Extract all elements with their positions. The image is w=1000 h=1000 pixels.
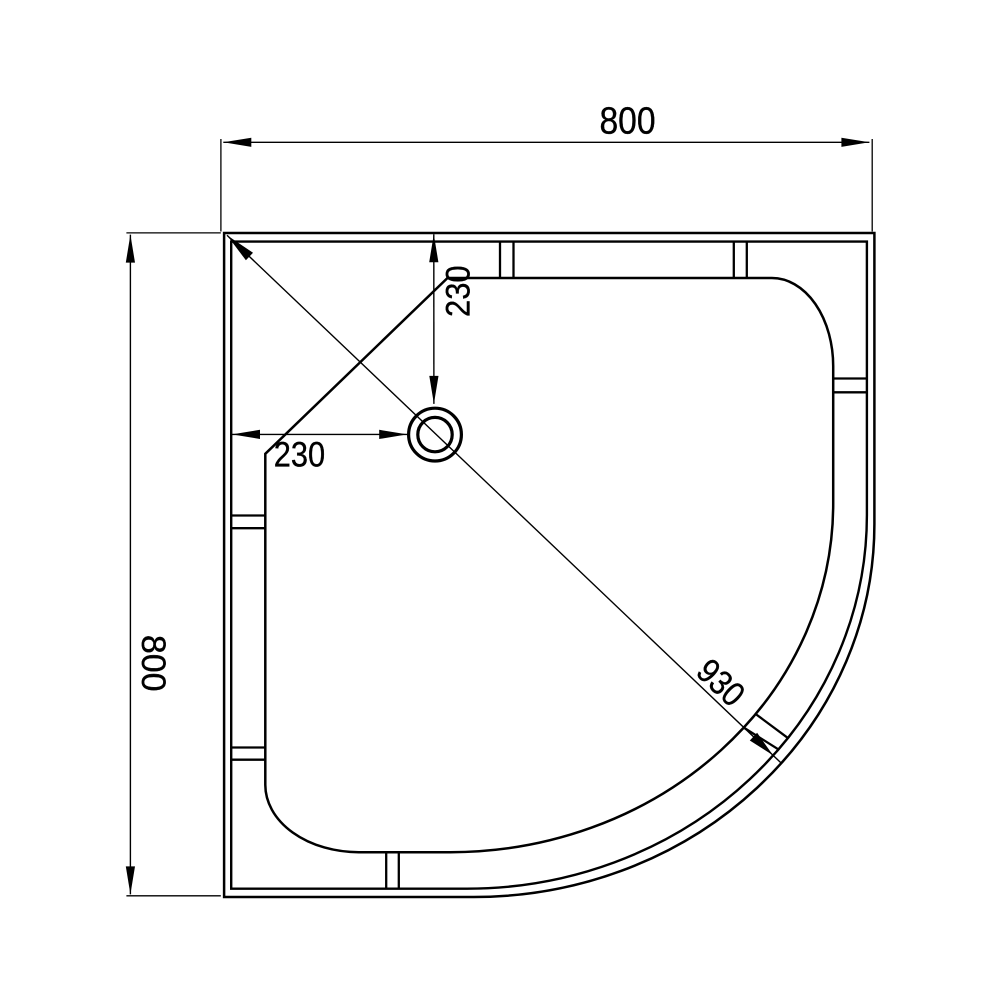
svg-text:800: 800 — [599, 100, 655, 142]
svg-text:230: 230 — [274, 434, 325, 473]
svg-text:800: 800 — [134, 635, 172, 692]
svg-text:230: 230 — [439, 265, 477, 317]
